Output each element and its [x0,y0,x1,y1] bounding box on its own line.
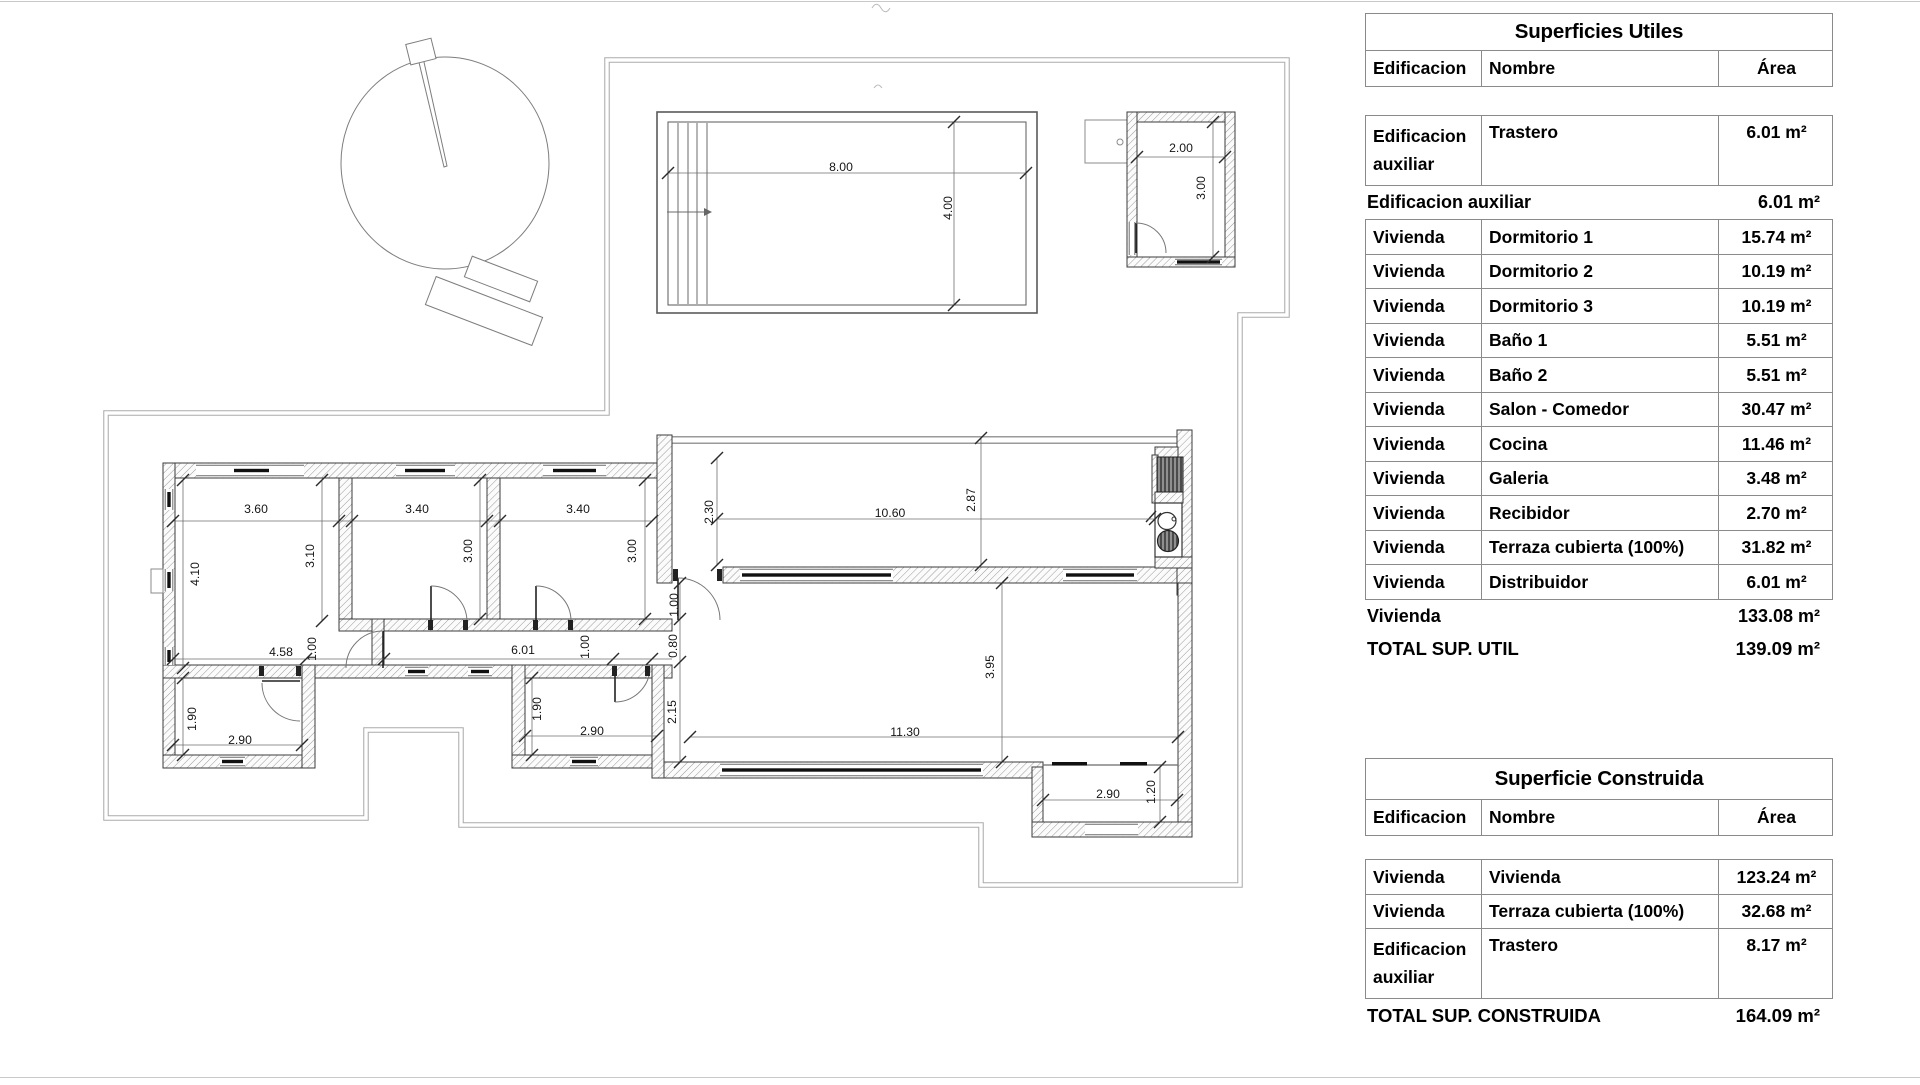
tree-symbol [341,38,549,345]
cell-area: 6.01 m² [1719,565,1834,599]
stray-mark-icon [872,4,890,12]
dimension-label: 4.00 [941,196,955,220]
column-header-nombre: Nombre [1482,800,1719,835]
dimension-label: 4.58 [269,645,293,659]
table-section: Edificacion auxiliarTrastero6.01 m² [1365,115,1833,186]
storage-building [1085,112,1235,267]
pool [657,112,1037,313]
cell-edificacion: Vivienda [1366,565,1482,599]
grill-icon [1157,457,1183,492]
dimension-label: 3.40 [566,502,590,516]
table-header: Superficie Construida Edificacion Nombre… [1365,758,1833,836]
column-header-area: Área [1719,51,1834,86]
cell-area: 30.47 m² [1719,393,1834,427]
dimension-label: 2.15 [665,700,679,724]
cell-edificacion: Vivienda [1366,462,1482,496]
table-row: ViviendaSalon - Comedor30.47 m² [1366,392,1832,427]
table-row: ViviendaDistribuidor6.01 m² [1366,564,1832,599]
cell-edificacion: Edificacion auxiliar [1366,929,1482,998]
dimension-label: 2.87 [964,488,978,512]
dimension-label: 3.95 [983,655,997,679]
dimension-label: 2.30 [702,500,716,524]
cell-area: 123.24 m² [1719,860,1834,894]
cell-nombre: Terraza cubierta (100%) [1482,895,1719,929]
table-row: ViviendaGaleria3.48 m² [1366,461,1832,496]
dimension-label: 2.90 [580,724,604,738]
dimension-label: 2.90 [1096,787,1120,801]
porch-edge [1043,762,1178,766]
dimension-label: 0.80 [666,634,680,658]
column-header-nombre: Nombre [1482,51,1719,86]
cell-nombre: Salon - Comedor [1482,393,1719,427]
dimension-label: 8.00 [829,160,853,174]
cell-area: 10.19 m² [1719,289,1834,323]
cell-area: 5.51 m² [1719,358,1834,392]
cell-edificacion: Vivienda [1366,220,1482,254]
table-section: ViviendaDormitorio 115.74 m²ViviendaDorm… [1365,219,1833,600]
dimension-label: 1.00 [305,637,319,661]
burner-icon [1158,531,1179,552]
cell-edificacion: Vivienda [1366,531,1482,565]
cell-nombre: Dormitorio 2 [1482,255,1719,289]
table-row: Edificacion auxiliarTrastero6.01 m² [1366,116,1832,185]
dimension-label: 3.60 [244,502,268,516]
table-grand-total: TOTAL SUP. CONSTRUIDA164.09 m² [1365,999,1833,1032]
cell-edificacion: Vivienda [1366,393,1482,427]
dimension-label: 6.01 [511,643,535,657]
table-row: ViviendaBaño 15.51 m² [1366,323,1832,358]
table-grand-total: TOTAL SUP. UTIL139.09 m² [1365,633,1833,666]
cell-edificacion: Vivienda [1366,427,1482,461]
dimension-label: 1.00 [667,593,681,617]
cell-edificacion: Edificacion auxiliar [1366,116,1482,185]
table-row: ViviendaDormitorio 210.19 m² [1366,254,1832,289]
dimension-label: 10.60 [875,506,906,520]
cell-nombre: Cocina [1482,427,1719,461]
cell-nombre: Dormitorio 3 [1482,289,1719,323]
table-header: Superficies Utiles Edificacion Nombre Ár… [1365,13,1833,87]
table-row: Edificacion auxiliarTrastero8.17 m² [1366,928,1832,998]
table-row: ViviendaDormitorio 310.19 m² [1366,288,1832,323]
dimension-label: 1.00 [578,635,592,659]
dimension-label: 2.00 [1169,141,1193,155]
cell-nombre: Baño 2 [1482,358,1719,392]
stray-mark2-icon [874,85,882,88]
dimension-label: 3.00 [625,539,639,563]
table-title: Superficie Construida [1366,759,1832,799]
cell-area: 5.51 m² [1719,324,1834,358]
cell-edificacion: Vivienda [1366,324,1482,358]
dimension-label: 11.30 [890,725,920,739]
cell-nombre: Distribuidor [1482,565,1719,599]
column-header-edificacion: Edificacion [1366,51,1482,86]
table-row: ViviendaCocina11.46 m² [1366,426,1832,461]
main-house-walls [163,430,1192,837]
cell-area: 31.82 m² [1719,531,1834,565]
cell-nombre: Terraza cubierta (100%) [1482,531,1719,565]
table-row: ViviendaDormitorio 115.74 m² [1366,220,1832,254]
cell-nombre: Trastero [1482,116,1719,185]
cell-edificacion: Vivienda [1366,358,1482,392]
equipment-pad [1085,120,1132,163]
table-group-total: Edificacion auxiliar6.01 m² [1365,186,1833,219]
cell-edificacion: Vivienda [1366,289,1482,323]
dimension-label: 3.00 [1194,176,1208,200]
superficie-construida-table: Superficie Construida Edificacion Nombre… [1365,758,1833,1032]
cell-nombre: Galeria [1482,462,1719,496]
column-header-edificacion: Edificacion [1366,800,1482,835]
dimension-label: 1.20 [1144,780,1158,804]
cell-edificacion: Vivienda [1366,255,1482,289]
cell-edificacion: Vivienda [1366,895,1482,929]
dimension-label: 2.90 [228,733,252,747]
dimension-label: 3.00 [461,539,475,563]
cell-nombre: Trastero [1482,929,1719,998]
cell-area: 6.01 m² [1719,116,1834,185]
superficies-utiles-table: Superficies Utiles Edificacion Nombre Ár… [1365,13,1833,666]
table-row: ViviendaTerraza cubierta (100%)31.82 m² [1366,530,1832,565]
table-title: Superficies Utiles [1366,14,1832,50]
cell-area: 10.19 m² [1719,255,1834,289]
cell-area: 8.17 m² [1719,929,1834,998]
table-row: ViviendaBaño 25.51 m² [1366,357,1832,392]
cell-nombre: Recibidor [1482,496,1719,530]
dimension-label: 1.90 [185,707,199,731]
cell-nombre: Baño 1 [1482,324,1719,358]
floor-plan-canvas: 8.004.002.003.003.603.403.404.103.103.00… [0,0,1360,1080]
dimension-label: 3.40 [405,502,429,516]
cell-area: 32.68 m² [1719,895,1834,929]
cell-edificacion: Vivienda [1366,496,1482,530]
table-body: Edificacion auxiliarTrastero6.01 m²Edifi… [1365,115,1833,666]
table-section: ViviendaVivienda123.24 m²ViviendaTerraza… [1365,859,1833,999]
dimension-label: 4.10 [188,562,202,586]
table-body: ViviendaVivienda123.24 m²ViviendaTerraza… [1365,859,1833,1032]
table-row: ViviendaTerraza cubierta (100%)32.68 m² [1366,894,1832,929]
cell-area: 11.46 m² [1719,427,1834,461]
column-header-area: Área [1719,800,1834,835]
cell-nombre: Dormitorio 1 [1482,220,1719,254]
cell-area: 3.48 m² [1719,462,1834,496]
cell-edificacion: Vivienda [1366,860,1482,894]
dimension-label: 3.10 [303,544,317,568]
table-row: ViviendaVivienda123.24 m² [1366,860,1832,894]
table-row: ViviendaRecibidor2.70 m² [1366,495,1832,530]
cell-area: 2.70 m² [1719,496,1834,530]
dimension-label: 1.90 [530,697,544,721]
table-group-total: Vivienda133.08 m² [1365,600,1833,633]
cell-area: 15.74 m² [1719,220,1834,254]
cell-nombre: Vivienda [1482,860,1719,894]
